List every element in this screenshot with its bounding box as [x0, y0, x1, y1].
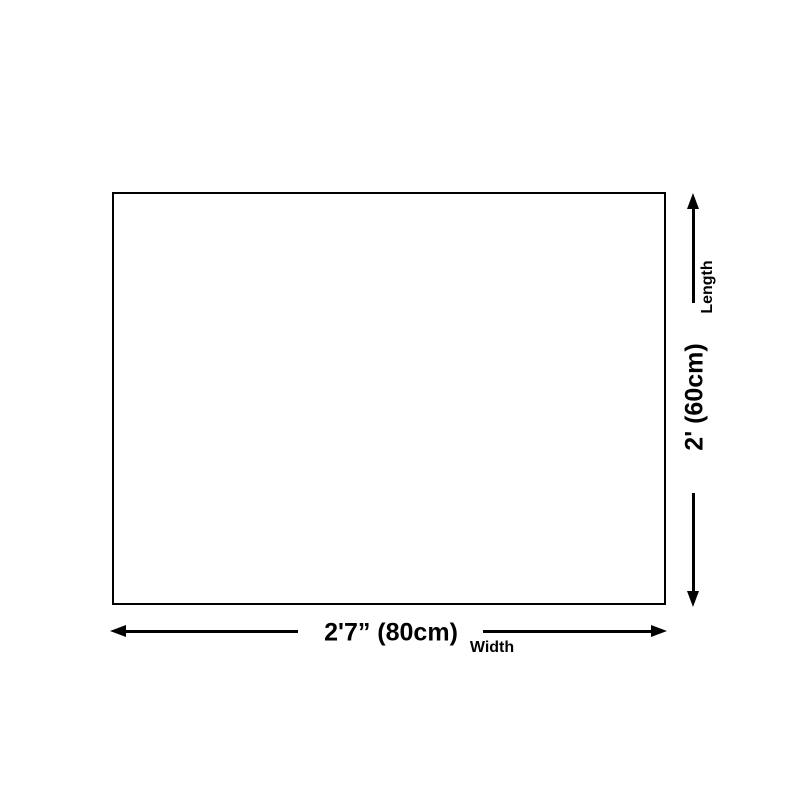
width-arrow-right-segment — [483, 630, 653, 633]
arrow-right-icon — [651, 625, 667, 637]
width-axis-label: Width — [470, 640, 514, 656]
length-arrow-top-segment — [692, 207, 695, 303]
width-value-label: 2'7” (80cm) — [324, 621, 458, 646]
product-outline-rectangle — [112, 192, 666, 605]
product-dimension-diagram: 2'7” (80cm) Width Length 2' (60cm) — [0, 0, 800, 800]
width-arrow-left-segment — [123, 630, 298, 633]
length-axis-label: Length — [700, 260, 716, 313]
length-arrow-bottom-segment — [692, 493, 695, 592]
arrow-down-icon — [687, 591, 699, 607]
length-value-label: 2' (60cm) — [683, 343, 708, 450]
